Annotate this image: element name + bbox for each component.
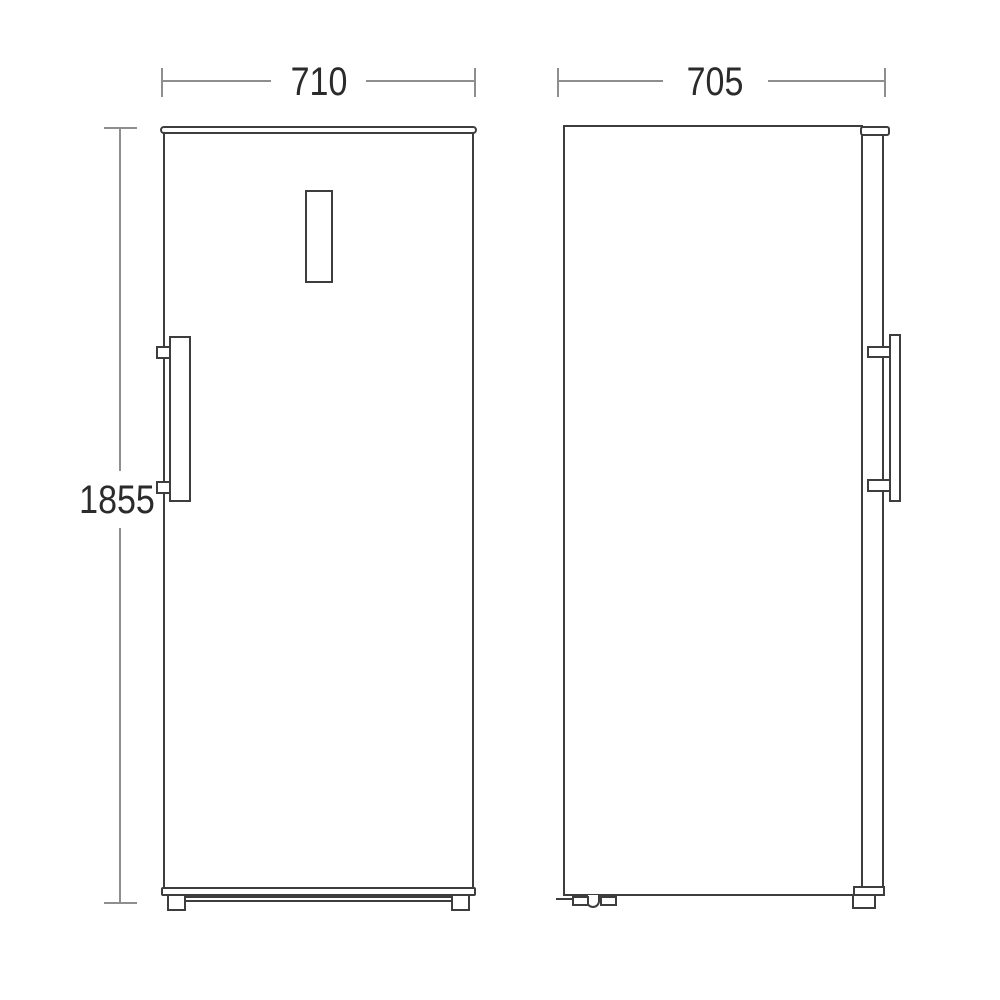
height-dimension-line-top [119,129,121,471]
depth-dimension-line-right [768,80,884,82]
dimension-drawing: 710 705 1855 [0,0,1000,1000]
front-base-bar [183,896,454,902]
side-door-handle [889,334,901,502]
front-plinth [161,887,476,896]
depth-dimension-tick-left [557,68,559,97]
front-foot-right [451,894,470,911]
depth-dimension-line-left [559,80,663,82]
front-door-handle [169,336,191,502]
side-door-bottom-cap [853,886,885,896]
side-rear-roller-left [572,896,589,906]
side-cabinet-outline [563,125,863,896]
side-handle-mount-top [867,346,891,358]
side-rear-roller-right [600,896,617,906]
front-control-panel [305,190,333,283]
width-dimension-tick-right [474,68,476,97]
side-handle-mount-bottom [867,479,891,492]
side-front-foot [852,894,876,909]
width-dimension-line-left [163,80,271,82]
width-dimension-line-right [366,80,474,82]
depth-dimension-label: 705 [687,62,744,102]
side-door-top-cap [860,126,890,136]
side-rear-bracket-line [556,898,572,900]
depth-dimension-tick-right [884,68,886,97]
height-dimension-tick-bottom [104,902,137,904]
height-dimension-line-bottom [119,528,121,903]
height-dimension-label: 1855 [79,480,155,520]
side-door-panel [861,131,884,889]
width-dimension-tick-left [161,68,163,97]
front-foot-left [167,894,186,911]
width-dimension-label: 710 [291,62,348,102]
